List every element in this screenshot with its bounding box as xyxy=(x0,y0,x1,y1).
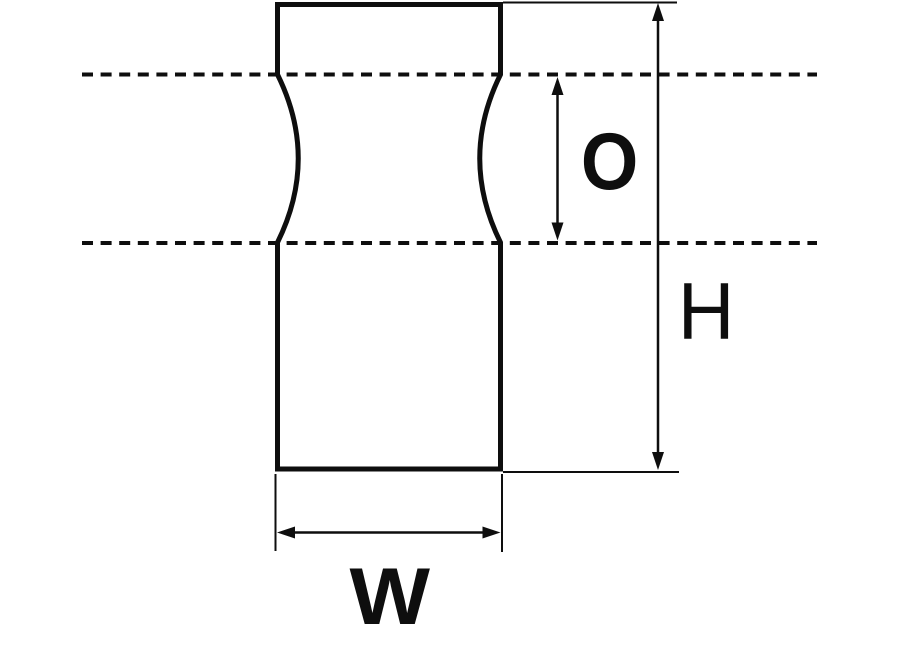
svg-text:W: W xyxy=(350,551,431,642)
svg-text:O: O xyxy=(581,117,638,207)
svg-text:H: H xyxy=(678,266,735,356)
